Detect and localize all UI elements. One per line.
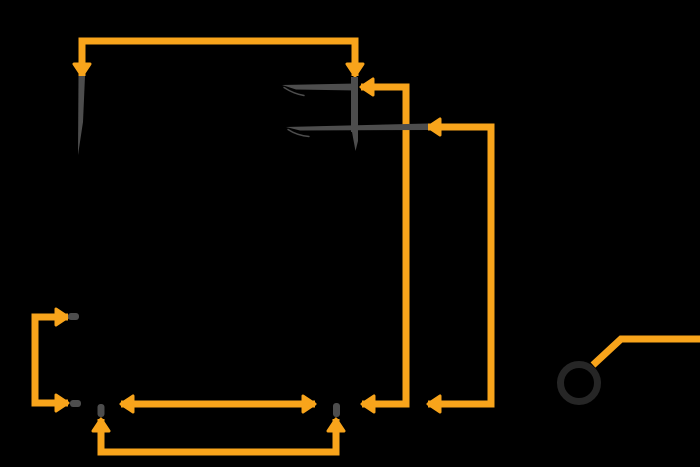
left-bracket-arrow-arrowhead-start [56,309,68,325]
lever-wire-line [593,339,700,365]
flow-diagram [0,0,700,467]
bottom-link-arrow-arrowhead-end [328,419,344,431]
inner-return-arrow-arrowhead-end [362,396,374,412]
left-bracket-arrow-line [35,317,68,403]
outer-return-arrow-line [428,127,491,404]
diagram-stage [0,0,700,467]
bottom-link-arrow-line [101,419,336,452]
pivot-ring [561,365,598,402]
outer-return-arrow-arrowhead-start [428,119,440,135]
top-span-arrow-line [82,41,355,76]
contact-pin-lower-left [70,400,81,407]
contact-pin-bottom-right [333,403,340,417]
bottom-link-arrow-arrowhead-start [93,419,109,431]
horizontal-span-arrow-arrowhead-start [121,396,133,412]
outer-return-arrow-arrowhead-end [428,396,440,412]
fork-lower-finger-flick [288,130,309,137]
contact-pin-bottom-left [98,404,105,417]
horizontal-span-arrow-arrowhead-end [303,396,315,412]
pointer-needle [78,76,85,155]
inner-return-arrow-line [361,87,406,404]
contact-pin-upper-left [68,313,79,320]
fork-upper-finger [282,84,356,91]
top-span-arrow-arrowhead-end [347,64,363,76]
fork-tail [352,132,358,151]
left-bracket-arrow-arrowhead-end [56,395,68,411]
top-span-arrow-arrowhead-start [74,64,90,76]
inner-return-arrow-arrowhead-start [361,79,373,95]
